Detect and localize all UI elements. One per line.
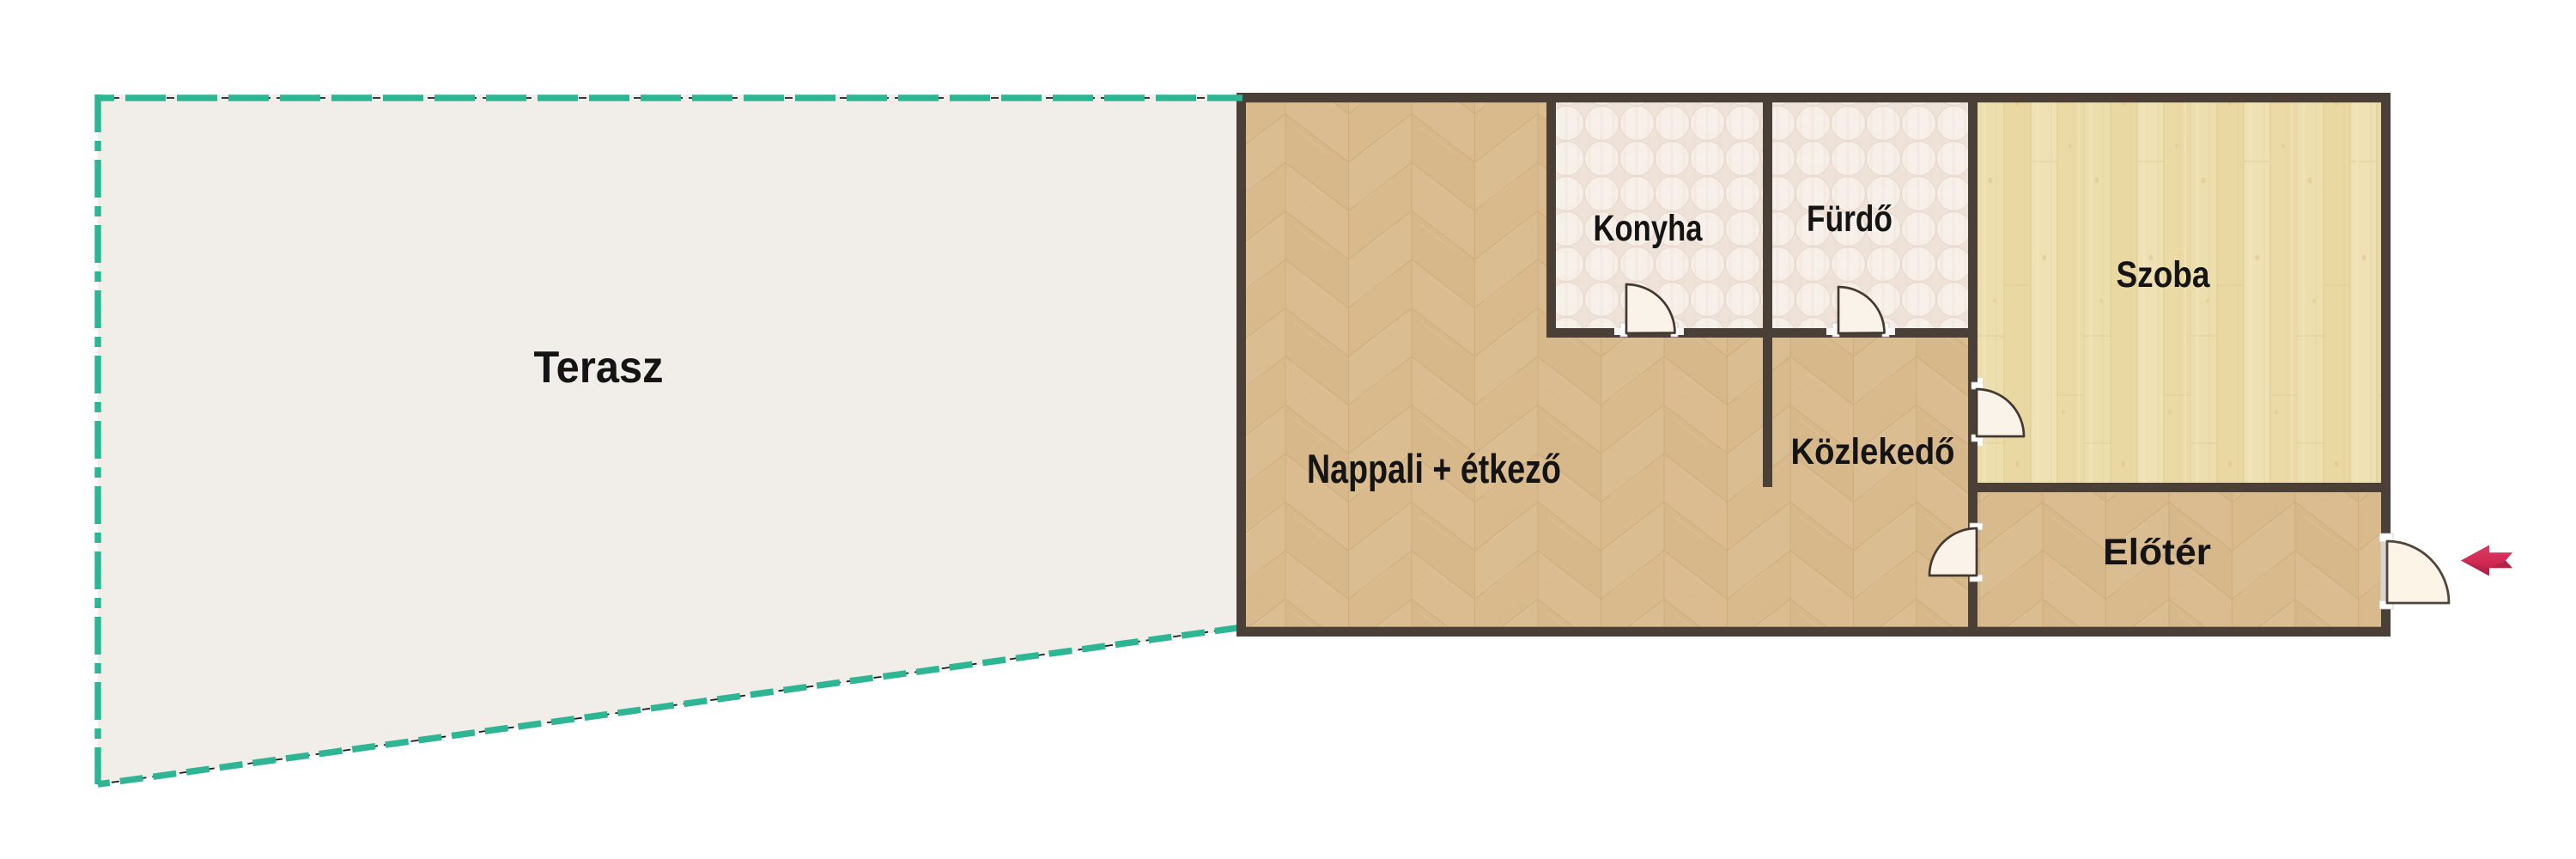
svg-text:Terasz: Terasz: [534, 343, 664, 393]
svg-text:Előtér: Előtér: [2103, 532, 2211, 573]
svg-text:Közlekedő: Közlekedő: [1791, 431, 1955, 472]
svg-text:Nappali + étkező: Nappali + étkező: [1307, 446, 1561, 491]
svg-text:Konyha: Konyha: [1594, 208, 1704, 249]
svg-text:Fürdő: Fürdő: [1807, 198, 1893, 240]
svg-text:Szoba: Szoba: [2117, 254, 2211, 295]
